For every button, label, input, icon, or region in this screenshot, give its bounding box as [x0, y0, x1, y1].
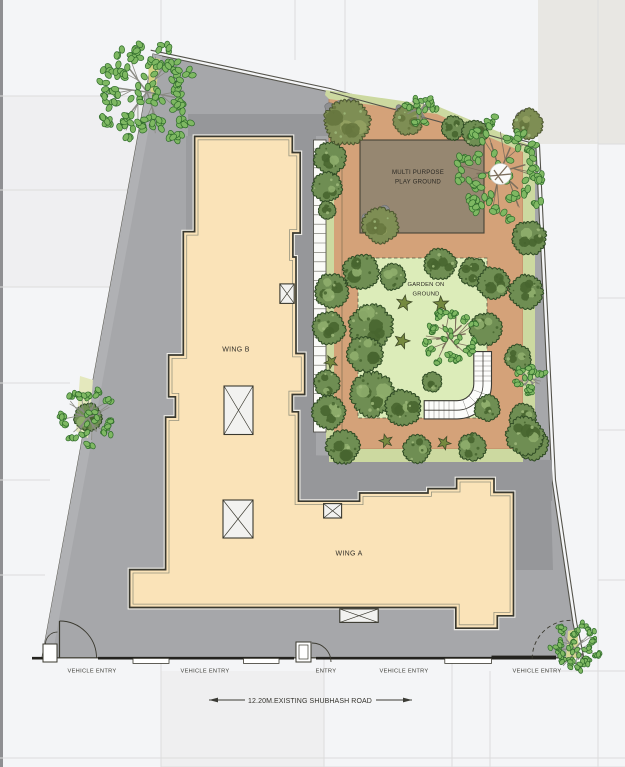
svg-text:12.20M.EXISTING SHUBHASH ROAD: 12.20M.EXISTING SHUBHASH ROAD: [248, 698, 372, 705]
svg-text:ENTRY: ENTRY: [316, 669, 337, 675]
svg-text:VEHICLE ENTRY: VEHICLE ENTRY: [513, 669, 562, 675]
svg-text:GROUND: GROUND: [413, 292, 440, 298]
svg-text:WING B: WING B: [222, 347, 249, 354]
svg-text:VEHICLE ENTRY: VEHICLE ENTRY: [68, 669, 117, 675]
svg-text:MULTI PURPOSE: MULTI PURPOSE: [392, 169, 444, 176]
svg-text:PLAY GROUND: PLAY GROUND: [395, 179, 441, 186]
svg-text:VEHICLE ENTRY: VEHICLE ENTRY: [181, 669, 230, 675]
svg-text:GARDEN ON: GARDEN ON: [408, 282, 445, 288]
svg-text:WING A: WING A: [335, 551, 362, 558]
svg-text:VEHICLE ENTRY: VEHICLE ENTRY: [380, 669, 429, 675]
